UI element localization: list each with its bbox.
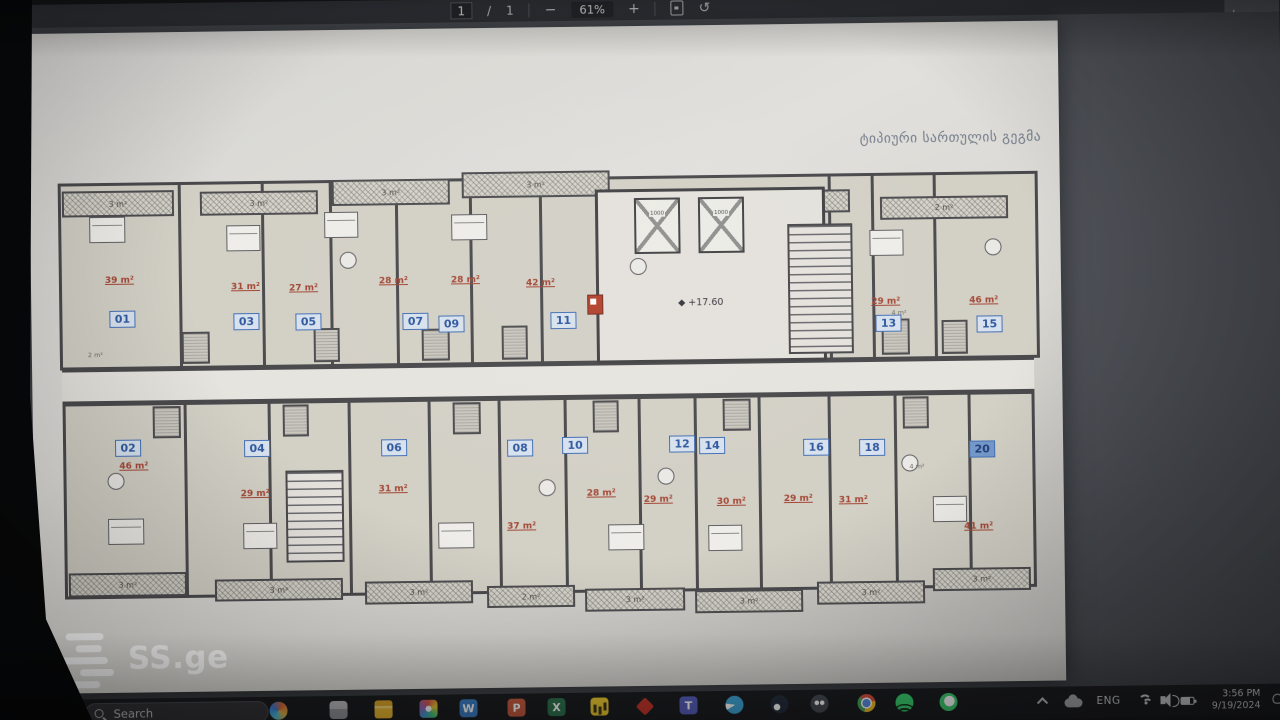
onedrive-icon[interactable] — [1064, 698, 1082, 707]
small-room-label: 2 m² — [88, 351, 103, 359]
battery-icon[interactable] — [1180, 697, 1194, 705]
unit-number: 02 — [115, 440, 141, 457]
balcony: 3 m² — [69, 572, 187, 598]
balcony: 3 m² — [933, 567, 1031, 591]
small-room-label: 4 m² — [891, 309, 906, 317]
balcony: 3 m² — [695, 589, 803, 613]
power-bi-icon[interactable] — [590, 697, 608, 715]
search-icon — [95, 709, 104, 718]
staircase — [787, 223, 854, 354]
search-placeholder: Search — [113, 706, 153, 720]
staircase — [285, 470, 344, 563]
bathroom — [153, 406, 181, 438]
small-room-label: 4 m² — [909, 462, 924, 470]
wall — [348, 403, 353, 593]
unit-area: 27 m² — [289, 283, 318, 293]
plan-title: ტიპიური სართულის გეგმა — [785, 129, 1041, 148]
bed-icon — [324, 212, 358, 238]
table-icon — [539, 479, 556, 496]
unit-number: 15 — [976, 315, 1002, 332]
autocad-icon[interactable] — [636, 697, 654, 715]
unit-area: 42 m² — [526, 278, 555, 288]
unit-number: 13 — [875, 315, 901, 332]
balcony: 3 m² — [200, 190, 318, 216]
fit-to-page-icon[interactable] — [671, 0, 684, 15]
ssge-watermark: SS.ge — [51, 625, 252, 700]
bed-icon — [451, 214, 487, 240]
unit-number: 10 — [562, 437, 588, 454]
wall — [395, 182, 400, 363]
floor-plan-page: ტიპიური სართულის გეგმა — [28, 21, 1067, 694]
unit-area: 37 m² — [507, 521, 536, 531]
balcony: 3 m² — [365, 580, 473, 604]
notifications-icon[interactable] — [1272, 694, 1280, 704]
unit-area: 31 m² — [231, 282, 260, 292]
copilot-icon[interactable] — [269, 702, 287, 720]
balcony: 2 m² — [880, 195, 1008, 220]
unit-area: 41 m² — [964, 521, 993, 531]
unit-number: 20 — [969, 440, 995, 457]
wifi-icon[interactable] — [1138, 694, 1151, 707]
bed-icon — [89, 217, 125, 243]
widgets-app-icon[interactable] — [329, 701, 347, 719]
balcony: 3 m² — [462, 170, 610, 198]
balcony: 3 m² — [585, 587, 685, 611]
balcony: 3 m² — [215, 578, 343, 602]
unit-area: 39 m² — [105, 276, 134, 286]
toolbar-divider — [655, 1, 656, 15]
unit-number: 11 — [550, 312, 576, 329]
unit-number: 06 — [381, 439, 407, 456]
zoom-out-button[interactable]: − — [545, 2, 557, 18]
telegram-icon[interactable] — [725, 696, 743, 714]
table-icon — [657, 468, 674, 485]
file-explorer-icon[interactable] — [374, 700, 392, 718]
rotate-counterclockwise-icon[interactable]: ↺ — [699, 1, 711, 15]
unit-area: 31 m² — [839, 495, 868, 505]
teams-icon[interactable]: T — [679, 696, 697, 714]
unit-number: 16 — [803, 439, 829, 456]
clock-date: 9/19/2024 — [1194, 699, 1260, 711]
unit-number: 08 — [507, 439, 533, 456]
unit-area: 28 m² — [379, 276, 408, 286]
unit-number: 04 — [244, 440, 270, 457]
bathroom — [593, 400, 619, 432]
unit-number: 05 — [295, 313, 321, 330]
unit-number: 01 — [109, 311, 135, 328]
bathroom — [314, 328, 340, 362]
wall — [498, 401, 503, 591]
powerpoint-icon[interactable]: P — [507, 699, 525, 717]
elevator-icon: 1000 — [634, 197, 681, 254]
bathroom — [941, 320, 967, 354]
table-icon — [630, 258, 647, 275]
balcony: 3 m² — [332, 178, 450, 206]
wall — [469, 181, 474, 362]
clock-time: 3:56 PM — [1194, 688, 1260, 700]
discord-icon[interactable] — [810, 695, 828, 713]
zoom-in-button[interactable]: + — [628, 0, 640, 16]
unit-area: 29 m² — [644, 495, 673, 505]
bathroom — [283, 404, 309, 436]
unit-area: 46 m² — [969, 295, 998, 305]
unit-area: 28 m² — [451, 275, 480, 285]
word-icon[interactable]: W — [459, 699, 477, 717]
bed-icon — [438, 522, 474, 548]
bed-icon — [933, 496, 967, 522]
fire-cabinet-icon — [587, 294, 603, 314]
wall — [184, 405, 189, 595]
zoom-level[interactable]: 61% — [571, 1, 613, 18]
wall — [893, 396, 898, 586]
unit-area: 29 m² — [241, 489, 270, 499]
steam-icon[interactable] — [770, 695, 788, 713]
unit-area: 46 m² — [119, 461, 148, 471]
bed-icon — [108, 519, 144, 545]
bed-icon — [226, 225, 260, 251]
unit-area: 31 m² — [379, 484, 408, 494]
bed-icon — [869, 230, 903, 256]
bed-icon — [608, 524, 644, 550]
excel-icon[interactable]: X — [547, 698, 565, 716]
balcony: 3 m² — [817, 580, 925, 604]
wall — [827, 397, 832, 587]
unit-area: 29 m² — [784, 494, 813, 504]
ssge-logo-text: SS.ge — [128, 639, 229, 676]
language-indicator[interactable]: ENG — [1096, 695, 1120, 707]
bathroom — [453, 402, 481, 434]
unit-number: 09 — [438, 315, 464, 332]
level-marker: +17.60 — [679, 297, 723, 309]
bathroom — [182, 332, 210, 364]
table-icon — [340, 252, 357, 269]
balcony: 2 m² — [487, 585, 575, 608]
wall — [638, 399, 643, 589]
pdf-viewer-area[interactable]: ტიპიური სართულის გეგმა — [0, 12, 1280, 701]
bed-icon — [708, 525, 742, 551]
wall — [757, 397, 762, 587]
volume-icon[interactable] — [1160, 696, 1165, 704]
bathroom — [422, 328, 450, 360]
taskbar-clock[interactable]: 3:56 PM 9/19/2024 — [1194, 688, 1260, 712]
spotify-icon[interactable] — [895, 693, 913, 711]
toolbar-divider — [529, 3, 530, 17]
unit-area: 29 m² — [871, 297, 900, 307]
wall — [967, 395, 972, 585]
unit-number: 03 — [233, 313, 259, 330]
unit-number: 12 — [669, 435, 695, 452]
bathroom — [502, 325, 528, 359]
photos-icon[interactable] — [419, 700, 437, 718]
bathroom — [902, 396, 928, 428]
search-input[interactable]: Search — [84, 701, 268, 720]
chrome-icon[interactable] — [857, 694, 875, 712]
unit-number: 14 — [699, 437, 725, 454]
wall — [693, 398, 698, 588]
table-icon — [984, 238, 1001, 255]
unit-area: 28 m² — [587, 488, 616, 498]
bathroom — [723, 399, 751, 431]
balcony: 3 m² — [62, 190, 174, 217]
page-separator: / — [487, 3, 491, 17]
tray-chevron-icon[interactable] — [1037, 697, 1048, 708]
wall — [428, 402, 433, 592]
page-number-input[interactable]: 1 — [450, 2, 472, 19]
unit-number: 18 — [859, 439, 885, 456]
table-icon — [107, 473, 124, 490]
unit-area: 30 m² — [717, 497, 746, 507]
whatsapp-icon[interactable] — [939, 693, 957, 711]
elevator-icon: 1000 — [698, 197, 745, 254]
wall — [564, 400, 569, 590]
unit-number: 07 — [402, 313, 428, 330]
bed-icon — [243, 523, 277, 549]
screen-photo: 1 / 1 − 61% + ↺ ⭳ ტიპიური სართულის გეგმა — [0, 0, 1280, 720]
monitor-screen: 1 / 1 − 61% + ↺ ⭳ ტიპიური სართულის გეგმა — [0, 0, 1280, 720]
page-total: 1 — [506, 3, 514, 17]
wall — [539, 180, 544, 361]
